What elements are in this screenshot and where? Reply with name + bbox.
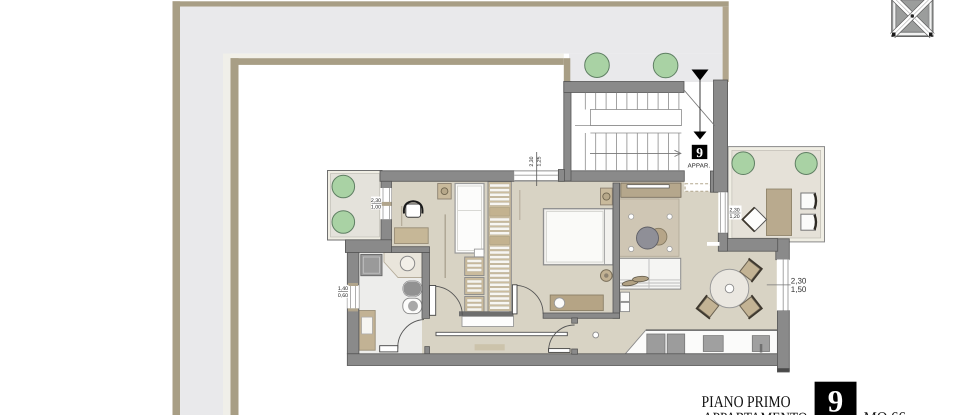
svg-text:1,25: 1,25 bbox=[536, 156, 542, 166]
svg-text:2,30: 2,30 bbox=[371, 198, 381, 204]
svg-text:1,40: 1,40 bbox=[338, 286, 348, 292]
svg-text:APPARTAMENTO: APPARTAMENTO bbox=[703, 408, 808, 415]
svg-text:2,30: 2,30 bbox=[529, 156, 535, 166]
svg-text:1,50: 1,50 bbox=[791, 285, 807, 294]
svg-text:9: 9 bbox=[828, 384, 844, 415]
svg-text:1,20: 1,20 bbox=[730, 214, 740, 220]
svg-text:2,30: 2,30 bbox=[791, 276, 807, 285]
svg-text:9: 9 bbox=[696, 145, 703, 160]
svg-text:MQ 66: MQ 66 bbox=[864, 408, 906, 415]
svg-text:1,00: 1,00 bbox=[371, 205, 381, 211]
svg-text:2,30: 2,30 bbox=[730, 207, 740, 213]
svg-text:0,60: 0,60 bbox=[338, 293, 348, 299]
svg-text:APPAR.: APPAR. bbox=[688, 163, 711, 170]
